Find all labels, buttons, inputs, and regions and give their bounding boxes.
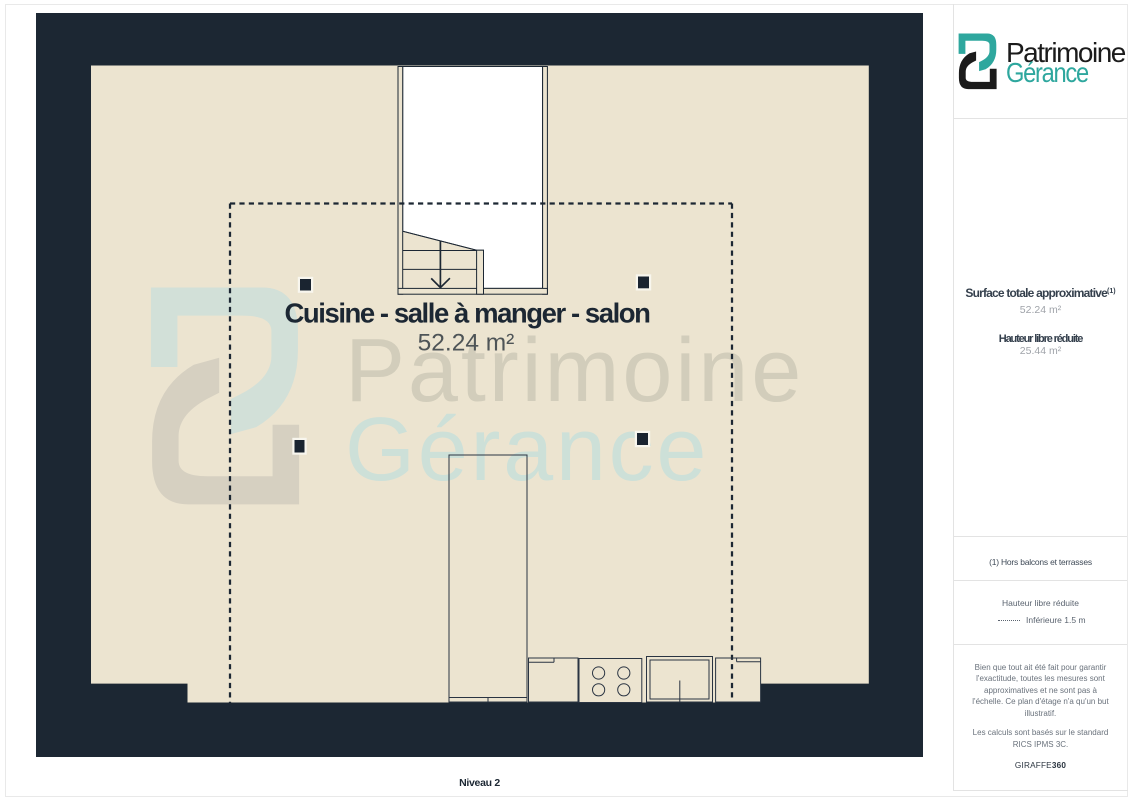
svg-text:Cuisine - salle à manger - sal: Cuisine - salle à manger - salon (284, 298, 650, 329)
svg-text:52.24 m²: 52.24 m² (418, 330, 515, 357)
svg-text:Niveau 2: Niveau 2 (459, 777, 500, 789)
